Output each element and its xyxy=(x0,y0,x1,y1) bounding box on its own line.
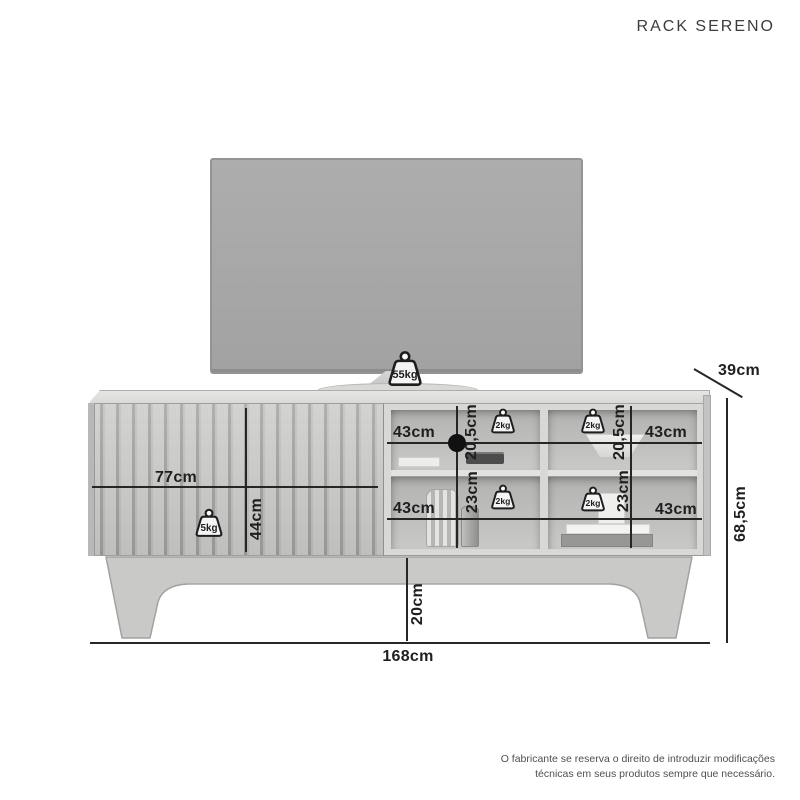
dim-line-total-width xyxy=(90,642,710,644)
tv-weight-capacity-icon: 55kg xyxy=(384,350,426,390)
label-middle-top-height: 20,5cm xyxy=(463,404,481,460)
decor-tray xyxy=(398,457,440,467)
dim-line-total-height xyxy=(726,398,728,643)
label-door-width: 77cm xyxy=(155,469,197,487)
cabinet-right-side-panel xyxy=(703,395,711,556)
door-weight-capacity-icon: 5kg xyxy=(192,508,226,540)
right-bottom-weight-value: 2kg xyxy=(586,498,601,508)
label-depth: 39cm xyxy=(718,362,760,380)
middle-top-weight-value: 2kg xyxy=(496,420,511,430)
dim-line-leg-height xyxy=(406,558,408,641)
label-middle-bottom-width: 43cm xyxy=(393,500,435,518)
product-dimension-diagram: RACK SERENO O fabricante se reserva o di… xyxy=(0,0,800,800)
cabinet-base-legs xyxy=(88,556,710,640)
door-left-stile xyxy=(88,403,95,556)
label-total-width: 168cm xyxy=(382,648,433,666)
label-leg-height: 20cm xyxy=(409,583,427,625)
label-right-bottom-width: 43cm xyxy=(655,501,697,519)
label-right-bottom-height: 23cm xyxy=(615,470,633,512)
middle-bottom-weight-icon: 2kg xyxy=(488,484,518,512)
middle-bottom-weight-value: 2kg xyxy=(496,496,511,506)
tv-illustration xyxy=(210,158,583,374)
label-door-height: 44cm xyxy=(248,498,266,540)
label-middle-bottom-height: 23cm xyxy=(464,471,482,513)
decor-book-top xyxy=(566,524,650,534)
label-middle-top-width: 43cm xyxy=(393,424,435,442)
right-bottom-weight-icon: 2kg xyxy=(578,486,608,514)
label-right-top-width: 43cm xyxy=(645,424,687,442)
right-top-weight-value: 2kg xyxy=(586,420,601,430)
dim-line-door-width xyxy=(92,486,378,488)
label-right-top-height: 20,5cm xyxy=(611,404,629,460)
dim-line-door-height xyxy=(245,408,247,552)
middle-top-weight-icon: 2kg xyxy=(488,408,518,436)
disclaimer-line-2: técnicas em seus produtos sempre que nec… xyxy=(435,767,775,782)
disclaimer-line-1: O fabricante se reserva o direito de int… xyxy=(435,752,775,767)
tv-weight-capacity-value: 55kg xyxy=(392,369,417,381)
decor-book-bottom xyxy=(561,534,653,547)
dim-line-shelf-width-top xyxy=(387,442,702,444)
slatted-door xyxy=(88,403,384,556)
right-top-weight-icon: 2kg xyxy=(578,408,608,436)
dim-line-middle-column xyxy=(456,406,458,548)
page-title: RACK SERENO xyxy=(637,18,775,36)
door-weight-capacity-value: 5kg xyxy=(200,523,217,534)
cabinet-top-surface xyxy=(88,390,710,404)
label-total-height: 68,5cm xyxy=(732,486,750,542)
manufacturer-disclaimer: O fabricante se reserva o direito de int… xyxy=(435,752,775,782)
